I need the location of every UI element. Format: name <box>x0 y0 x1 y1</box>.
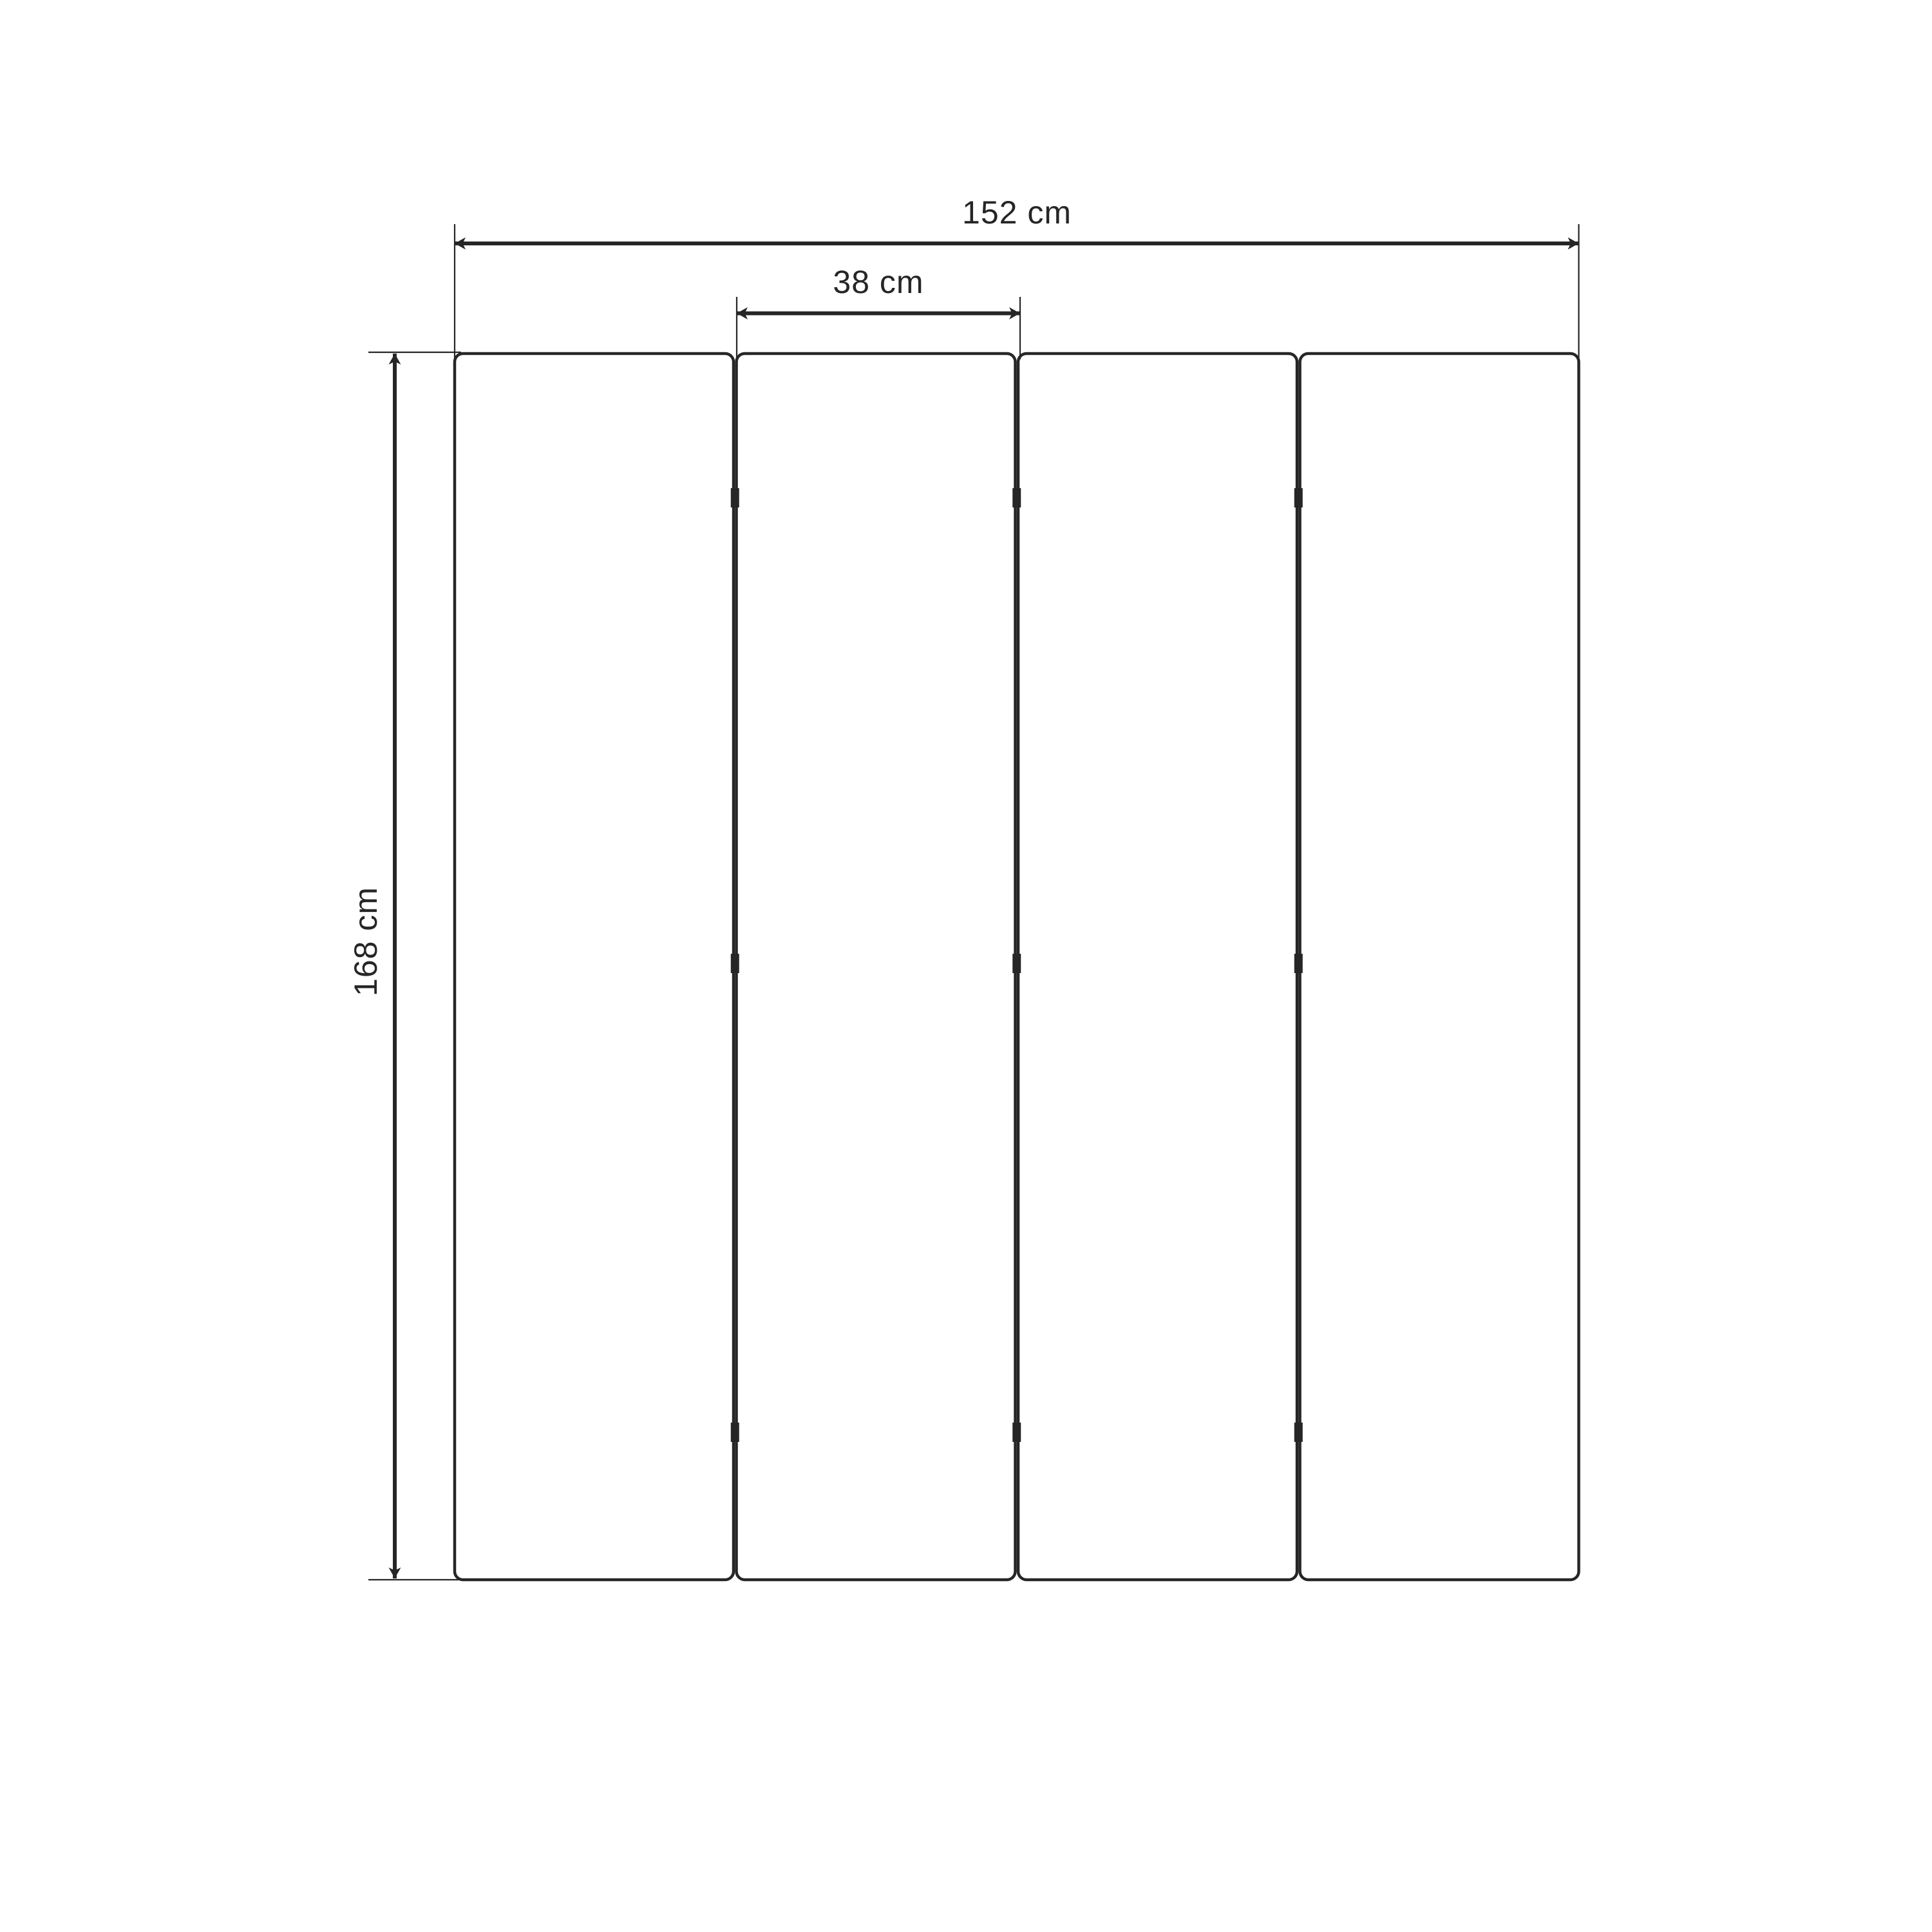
hinge-row3-gap2 <box>1012 1423 1021 1442</box>
hinge-row2-gap1 <box>731 954 739 973</box>
panel-width-dimension: 38 cm <box>737 264 1020 359</box>
width-dimension-label: 152 cm <box>962 194 1072 231</box>
folding-panels-drawing: 152 cm 38 cm 168 cm <box>0 0 1932 1932</box>
panel-4 <box>1300 354 1579 1580</box>
panel-3 <box>1018 354 1297 1580</box>
height-dimension-label: 168 cm <box>348 887 384 996</box>
panel-width-dimension-label: 38 cm <box>833 264 923 300</box>
technical-drawing-canvas: 152 cm 38 cm 168 cm <box>0 0 1932 1932</box>
hinge-row1-gap1 <box>731 488 739 507</box>
hinge-row1-gap2 <box>1012 488 1021 507</box>
hinge-row3-gap1 <box>731 1423 739 1442</box>
overall-width-dimension: 152 cm <box>455 194 1579 359</box>
hinge-row2-gap2 <box>1012 954 1021 973</box>
hinge-row2-gap3 <box>1294 954 1303 973</box>
panel-2 <box>737 354 1016 1580</box>
hinge-row1-gap3 <box>1294 488 1303 507</box>
panel-1 <box>455 354 734 1580</box>
hinge-row3-gap3 <box>1294 1423 1303 1442</box>
overall-height-dimension: 168 cm <box>348 352 461 1580</box>
